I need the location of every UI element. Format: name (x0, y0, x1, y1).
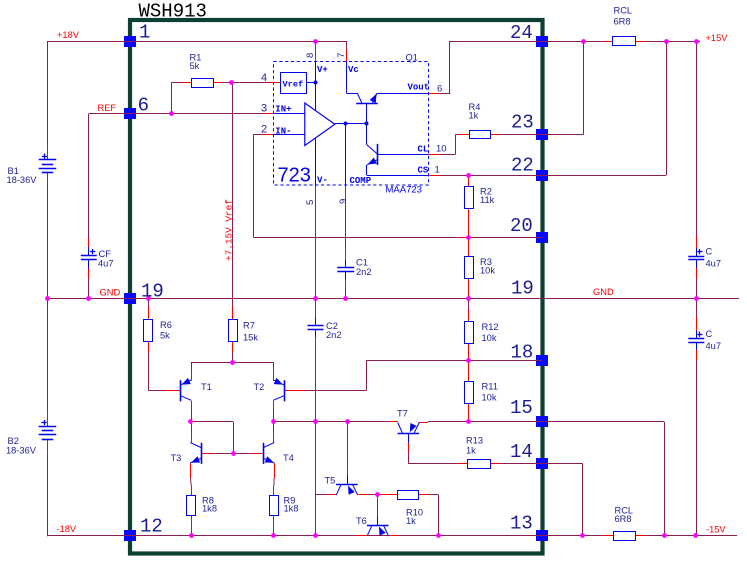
svg-text:+15V: +15V (706, 33, 729, 43)
svg-text:-15V: -15V (706, 525, 726, 535)
svg-text:+18V: +18V (57, 30, 80, 40)
svg-text:14: 14 (510, 441, 533, 463)
svg-text:7: 7 (336, 53, 347, 58)
svg-text:-18V: -18V (57, 524, 77, 534)
svg-text:1k: 1k (469, 111, 479, 121)
svg-text:1k8: 1k8 (202, 504, 217, 514)
svg-text:10: 10 (436, 144, 447, 155)
svg-text:R6: R6 (160, 320, 172, 330)
svg-text:1k: 1k (406, 516, 416, 526)
svg-text:5k: 5k (160, 331, 170, 341)
svg-text:MAA723: MAA723 (386, 185, 422, 196)
svg-text:B2: B2 (8, 436, 19, 446)
svg-text:5: 5 (305, 200, 316, 205)
svg-text:T3: T3 (171, 453, 182, 463)
svg-text:IN+: IN+ (275, 105, 291, 115)
svg-text:T2: T2 (254, 382, 265, 392)
svg-text:4u7: 4u7 (706, 259, 722, 269)
svg-text:GND: GND (100, 288, 121, 298)
svg-text:Vref: Vref (283, 80, 304, 90)
svg-text:T4: T4 (283, 453, 294, 463)
svg-text:4u7: 4u7 (98, 259, 114, 269)
svg-text:1: 1 (139, 22, 150, 44)
svg-text:15: 15 (510, 397, 533, 419)
svg-text:RCL: RCL (614, 6, 633, 16)
svg-text:10k: 10k (482, 333, 497, 343)
svg-text:T7: T7 (397, 409, 408, 419)
svg-text:20: 20 (510, 215, 533, 237)
svg-text:T1: T1 (201, 382, 212, 392)
svg-text:Q1: Q1 (406, 53, 418, 63)
svg-text:C: C (706, 247, 713, 257)
svg-text:GND: GND (593, 287, 614, 297)
svg-text:8: 8 (305, 53, 316, 58)
svg-text:IN-: IN- (275, 126, 291, 136)
svg-text:6: 6 (138, 95, 149, 117)
svg-text:22: 22 (511, 155, 534, 177)
svg-text:R13: R13 (466, 436, 483, 446)
svg-text:2n2: 2n2 (326, 330, 342, 340)
svg-text:18: 18 (511, 342, 534, 364)
svg-text:3: 3 (261, 102, 267, 114)
svg-text:2n2: 2n2 (356, 267, 372, 277)
svg-text:18-36V: 18-36V (7, 175, 38, 185)
svg-text:13: 13 (510, 513, 533, 535)
svg-text:COMP: COMP (350, 176, 372, 186)
svg-text:19: 19 (141, 281, 164, 303)
svg-text:R7: R7 (243, 321, 255, 331)
svg-text:10k: 10k (482, 393, 497, 403)
svg-text:C1: C1 (356, 258, 368, 268)
svg-text:T5: T5 (325, 476, 336, 486)
svg-text:REF: REF (98, 103, 117, 113)
svg-text:18-36V: 18-36V (6, 446, 37, 456)
svg-text:2: 2 (261, 123, 267, 135)
svg-text:723: 723 (278, 165, 311, 187)
svg-text:CL: CL (418, 145, 429, 155)
svg-text:12: 12 (140, 516, 163, 538)
svg-text:19: 19 (511, 278, 534, 300)
svg-text:CF: CF (99, 249, 112, 259)
svg-text:C: C (706, 329, 713, 339)
svg-text:V+: V+ (317, 65, 328, 75)
svg-text:11k: 11k (480, 195, 495, 205)
svg-text:R11: R11 (482, 382, 498, 392)
svg-text:1k: 1k (466, 446, 476, 456)
svg-text:23: 23 (511, 112, 534, 134)
svg-text:T6: T6 (356, 516, 367, 526)
svg-text:5k: 5k (190, 61, 200, 71)
svg-text:6R8: 6R8 (615, 514, 632, 524)
svg-text:CS: CS (418, 166, 429, 176)
svg-text:9: 9 (338, 199, 349, 204)
svg-text:4: 4 (261, 72, 267, 84)
svg-text:R12: R12 (482, 322, 499, 332)
svg-text:24: 24 (510, 22, 533, 44)
svg-text:V-: V- (317, 176, 328, 186)
svg-text:1: 1 (435, 165, 440, 176)
svg-text:Vout: Vout (408, 83, 430, 93)
svg-text:4u7: 4u7 (706, 341, 722, 351)
svg-text:15k: 15k (243, 333, 258, 343)
svg-text:6: 6 (437, 84, 442, 95)
svg-text:+7.15V Vref: +7.15V Vref (224, 199, 235, 261)
svg-text:6R8: 6R8 (614, 17, 631, 27)
svg-text:10k: 10k (480, 266, 495, 276)
svg-text:WSH913: WSH913 (139, 1, 207, 23)
svg-text:1k8: 1k8 (284, 504, 299, 514)
svg-text:Vc: Vc (348, 65, 359, 75)
